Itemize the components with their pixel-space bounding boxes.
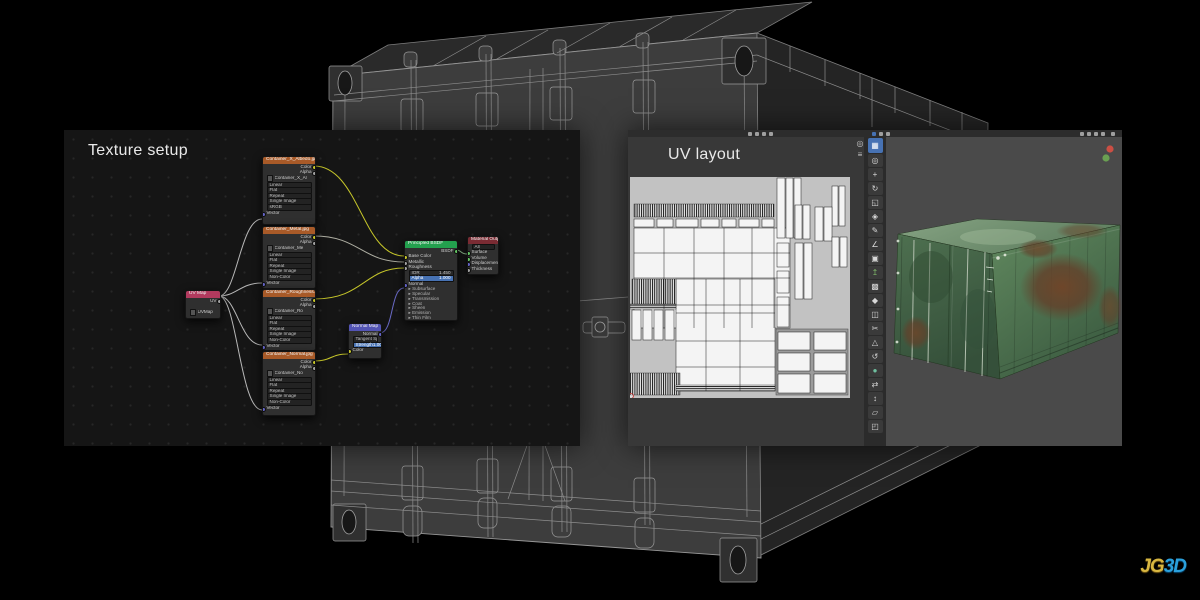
node-row-vector: Vector [263,343,315,349]
tool-extrude-region[interactable]: ↥ [868,266,883,279]
node-header[interactable]: Material Output [468,237,498,244]
tool-spin[interactable]: ↺ [868,350,883,363]
tool-move[interactable]: + [868,168,883,181]
node-row-vector: Vector [263,405,315,411]
node-header[interactable]: Container_Normal.jpg [263,352,315,359]
node-row-vector: Vector [263,280,315,286]
node-tex-metallic[interactable]: Container_Metal.jpgColorAlphaContainer_M… [262,226,316,289]
node-row-thin-film[interactable]: ▸ Thin Film [405,316,457,321]
texture-setup-title: Texture setup [88,142,188,160]
node-row-uvmap: UVMap [186,309,220,316]
node-row-color: Color [349,348,381,354]
node-wires [64,130,580,446]
node-normal-map[interactable]: Normal MapNormalTangent SpaceStrength1.0… [348,323,382,359]
image-icon [267,308,274,315]
editor-header-strip [628,130,1122,137]
logo-jg: JG [1140,556,1163,577]
node-header[interactable]: Container_Roughness.jpg [263,290,315,297]
node-tex-basecolor[interactable]: Container_X_Albedo.jpgColorAlphaContaine… [262,156,316,225]
node-uv-map[interactable]: UV MapUVUVMap [185,290,221,319]
header-icon[interactable] [886,132,890,136]
image-icon [267,245,274,252]
panel-texture-setup: Texture setup UV MapUVUVMapContainer_X_A… [64,130,580,446]
tool-measure[interactable]: ∠ [868,238,883,251]
tool-rotate[interactable]: ↻ [868,182,883,195]
node-principled-bsdf[interactable]: Principled BSDFBSDFBase ColorMetallicRou… [404,240,458,321]
node-row-thickness: Thickness [468,266,498,272]
viewport-toolbar: ▦◎+↻◱◈✎∠▣↥▩◆◫✂△↺●⇄↕▱◰ [864,137,886,446]
node-material-output[interactable]: Material OutputAllSurfaceVolumeDisplacem… [467,236,499,275]
image-icon [190,309,197,316]
tool-shrink-fatten[interactable]: ↕ [868,392,883,405]
header-icon[interactable] [1111,132,1115,136]
logo: JG3D [1140,556,1186,578]
node-header[interactable]: Normal Map [349,324,381,331]
tool-edge-slide[interactable]: ⇄ [868,378,883,391]
container-model [894,145,1122,379]
header-icon[interactable] [748,132,752,136]
tool-rip-region[interactable]: ◰ [868,420,883,433]
tool-select-box[interactable]: ▦ [868,138,883,153]
node-tex-roughness[interactable]: Container_Roughness.jpgColorAlphaContain… [262,289,316,351]
header-icon[interactable] [769,132,773,136]
header-icon[interactable] [762,132,766,136]
node-header[interactable]: Container_X_Albedo.jpg [263,157,315,164]
node-tex-normal[interactable]: Container_Normal.jpgColorAlphaContainer_… [262,351,316,416]
header-icon[interactable] [879,132,883,136]
header-icon[interactable] [1094,132,1098,136]
node-row-vector: Vector [263,210,315,216]
logo-3d: 3D [1164,556,1186,577]
tool-bevel[interactable]: ◆ [868,294,883,307]
header-icon[interactable] [1080,132,1084,136]
header-icon[interactable] [1087,132,1091,136]
tool-knife[interactable]: ✂ [868,322,883,335]
stage: Texture setup UV MapUVUVMapContainer_X_A… [0,0,1200,600]
node-header[interactable]: Container_Metal.jpg [263,227,315,234]
tool-loop-cut[interactable]: ◫ [868,308,883,321]
panel-uv-layout: UV layout ◎≡ ▦◎+↻◱◈✎∠▣↥▩◆◫✂△↺●⇄↕▱◰ [628,130,1122,446]
uv-canvas[interactable] [630,177,850,398]
node-header[interactable]: Principled BSDF [405,241,457,248]
uv-layout-title: UV layout [668,146,740,164]
tool-cursor[interactable]: ◎ [868,154,883,167]
tool-shear[interactable]: ▱ [868,406,883,419]
tool-transform[interactable]: ◈ [868,210,883,223]
header-icon[interactable] [1101,132,1105,136]
image-icon [267,175,274,182]
tool-poly-build[interactable]: △ [868,336,883,349]
tool-scale[interactable]: ◱ [868,196,883,209]
header-icon[interactable] [755,132,759,136]
tool-smooth[interactable]: ● [868,364,883,377]
image-icon [267,370,274,377]
header-icon[interactable] [872,132,876,136]
node-header[interactable]: UV Map [186,291,220,298]
tool-inset-faces[interactable]: ▩ [868,280,883,293]
tool-annotate[interactable]: ✎ [868,224,883,237]
tool-add-cube[interactable]: ▣ [868,252,883,265]
viewport-3d[interactable] [886,137,1122,446]
